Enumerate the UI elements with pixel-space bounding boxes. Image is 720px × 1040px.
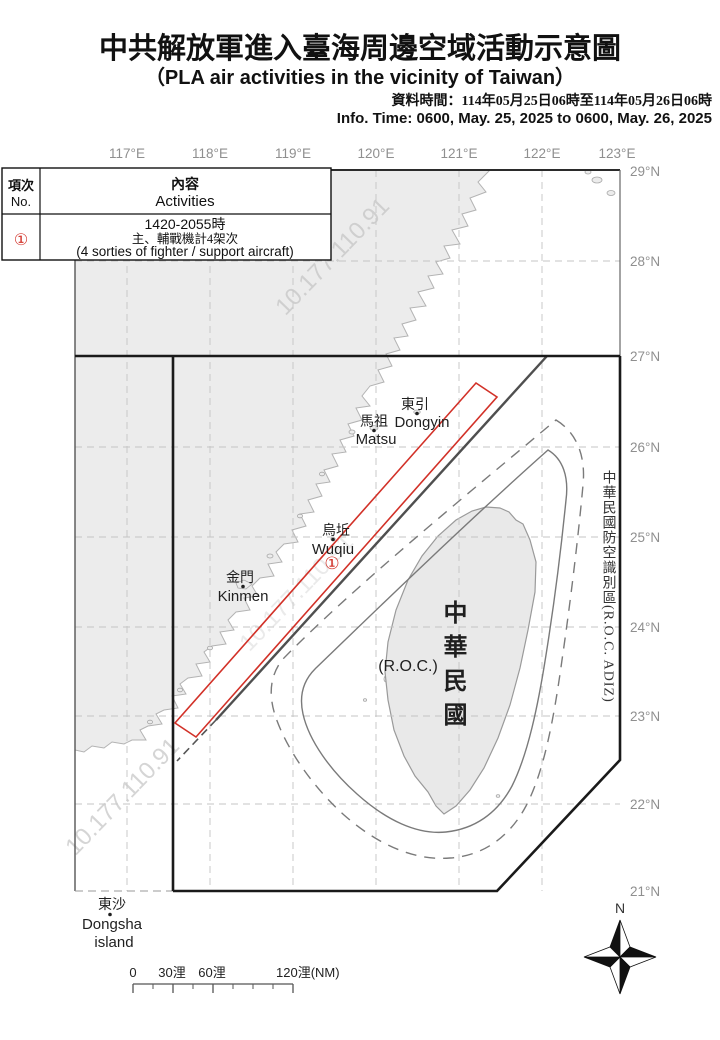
lat-tick: 27°N bbox=[630, 349, 660, 364]
table-row-time: 1420-2055時 bbox=[145, 216, 226, 232]
table-header-no-zh: 項次 bbox=[8, 178, 34, 193]
kinmen-label-zh: 金門 bbox=[226, 570, 254, 586]
lon-tick: 117°E bbox=[109, 146, 145, 161]
watermark-text: 10.177.110.91 bbox=[60, 733, 185, 861]
taiwan-label-zh: 中華民國 bbox=[439, 600, 467, 736]
info-time-en: Info. Time: 0600, May. 25, 2025 to 0600,… bbox=[337, 110, 712, 127]
longitude-axis: 117°E 118°E 119°E 120°E 121°E 122°E 123°… bbox=[109, 146, 635, 161]
lon-tick: 118°E bbox=[192, 146, 228, 161]
scale-0: 0 bbox=[129, 965, 136, 980]
dongsha-label-en2: island bbox=[94, 934, 133, 951]
adiz-side-label: 中華民國防空識別區(R.O.C. ADIZ) bbox=[601, 470, 617, 703]
dongyin-label-en: Dongyin bbox=[394, 414, 449, 431]
scale-30: 30浬 bbox=[158, 965, 185, 980]
kinmen-label-en: Kinmen bbox=[218, 588, 269, 605]
matsu-label-en: Matsu bbox=[356, 431, 397, 448]
lon-tick: 121°E bbox=[441, 146, 478, 161]
compass-north-label: N bbox=[615, 900, 625, 916]
scale-bar bbox=[133, 984, 293, 993]
lat-tick: 29°N bbox=[630, 164, 660, 179]
table-header-activities-en: Activities bbox=[155, 193, 214, 210]
dongsha-label-zh: 東沙 bbox=[98, 897, 126, 913]
lat-tick: 22°N bbox=[630, 797, 660, 812]
table-row-number: ① bbox=[14, 232, 28, 249]
page-title: 中共解放軍進入臺海周邊空域活動示意圖 bbox=[99, 31, 621, 65]
lon-tick: 120°E bbox=[358, 146, 395, 161]
info-table: 項次 No. 內容 Activities ① 1420-2055時 主、輔戰機計… bbox=[2, 168, 331, 260]
lon-tick: 119°E bbox=[275, 146, 311, 161]
lat-tick: 25°N bbox=[630, 530, 660, 545]
map-canvas: 中共解放軍進入臺海周邊空域活動示意圖 （PLA air activities i… bbox=[0, 0, 720, 1040]
taiwan-label-en: (R.O.C.) bbox=[378, 658, 438, 675]
scale-bar-labels: 0 30浬 60浬 120浬(NM) bbox=[129, 965, 339, 980]
lon-tick: 122°E bbox=[524, 146, 561, 161]
lat-tick: 26°N bbox=[630, 440, 660, 455]
lat-tick: 28°N bbox=[630, 254, 660, 269]
matsu-label-zh: 馬祖 bbox=[360, 414, 388, 430]
data-time-zh: 資料時間：114年05月25日06時至114年05月26日06時 bbox=[392, 92, 712, 109]
page-subtitle: （PLA air activities in the vicinity of T… bbox=[145, 66, 575, 89]
lat-tick: 24°N bbox=[630, 620, 660, 635]
wuqiu-label-zh: 烏坵 bbox=[322, 522, 350, 539]
lon-tick: 123°E bbox=[599, 146, 636, 161]
dongyin-label-zh: 東引 bbox=[401, 397, 429, 413]
scale-120: 120浬(NM) bbox=[276, 965, 340, 980]
wuqiu-label-en: Wuqiu bbox=[312, 541, 354, 558]
scale-60: 60浬 bbox=[198, 965, 225, 980]
table-row-desc-en: (4 sorties of fighter / support aircraft… bbox=[76, 244, 294, 259]
lat-tick: 21°N bbox=[630, 884, 660, 899]
dongsha-label-en: Dongsha bbox=[82, 916, 143, 933]
table-header-activities-zh: 內容 bbox=[171, 176, 199, 193]
compass-rose bbox=[584, 920, 656, 994]
latitude-axis: 29°N 28°N 27°N 26°N 25°N 24°N 23°N 22°N … bbox=[630, 164, 660, 899]
lat-tick: 23°N bbox=[630, 709, 660, 724]
table-header-no-en: No. bbox=[11, 194, 31, 209]
pla-activity-map-page: 中共解放軍進入臺海周邊空域活動示意圖 （PLA air activities i… bbox=[0, 0, 720, 1040]
